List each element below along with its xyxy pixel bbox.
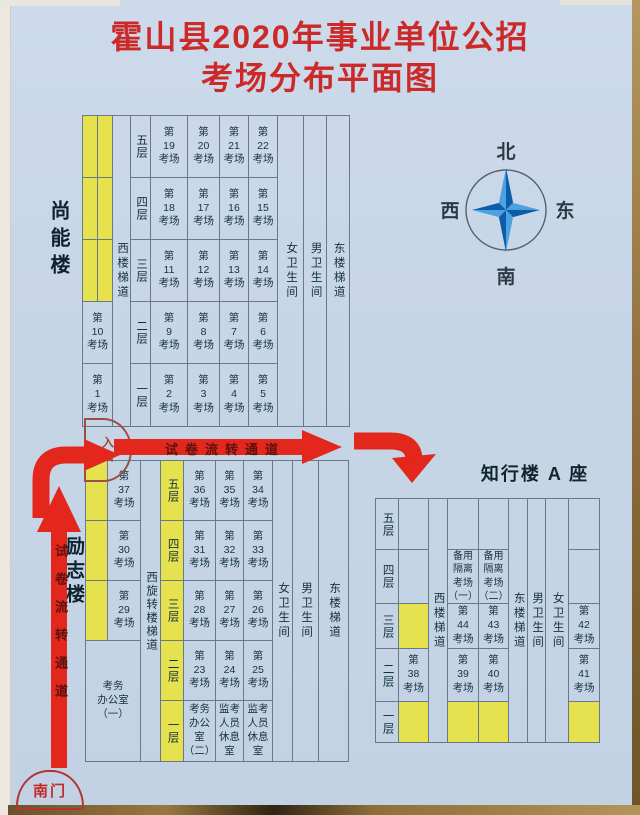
stairway-column-west: 西楼梯道 (113, 116, 131, 426)
empty-cell (569, 499, 599, 550)
room-cell: 第 30 考场 (108, 521, 141, 581)
room-cell: 第 39 考场 (448, 649, 479, 702)
highlighted-cell (83, 116, 98, 178)
floor-label: 一层 (376, 702, 399, 742)
restroom-column-female: 女卫生间 (273, 461, 293, 761)
room-cell: 第 21 考场 (220, 116, 249, 178)
floor-label: 一层 (161, 701, 184, 761)
room-cell: 第 28 考场 (184, 581, 216, 641)
compass-east-label: 东 (555, 199, 574, 222)
room-cell: 第 10 考场 (83, 302, 113, 364)
highlighted-cell (98, 240, 113, 302)
highlighted-cell (83, 178, 98, 240)
room-cell: 第 29 考场 (108, 581, 141, 641)
highlighted-cell (569, 702, 599, 742)
highlighted-cell (86, 521, 108, 581)
room-cell: 第 42 考场 (569, 604, 599, 649)
exam-map-board: 霍山县2020年事业单位公招 考场分布平面图 尚能楼 第 10 考场 第 1 考… (0, 0, 640, 815)
floor-label: 四层 (161, 521, 184, 581)
room-cell: 第 13 考场 (220, 240, 249, 302)
room-cell: 第 19 考场 (151, 116, 188, 178)
room-cell: 第 31 考场 (184, 521, 216, 581)
stairway-column-west: 西楼梯道 (429, 499, 448, 742)
floor-label: 三层 (161, 581, 184, 641)
frame-left (0, 0, 11, 815)
stairway-column-east: 东楼梯道 (327, 116, 349, 426)
room-cell: 第 14 考场 (249, 240, 278, 302)
room-cell: 第 5 考场 (249, 364, 278, 426)
right-curve-arrow-icon (352, 430, 447, 486)
frame-top-left (0, 0, 120, 6)
floor-label: 一层 (131, 364, 151, 426)
channel-label-vertical: 试卷流转通道 (51, 544, 70, 712)
room-cell: 第 4 考场 (220, 364, 249, 426)
room-cell: 第 36 考场 (184, 461, 216, 521)
room-cell: 第 41 考场 (569, 649, 599, 702)
restroom-column-female: 女卫生间 (278, 116, 304, 426)
room-cell: 第 18 考场 (151, 178, 188, 240)
zhixing-table: 五层 四层 三层 二层 一层 第 38 考场 西楼梯道 备用 隔离 考场 （一）… (375, 498, 600, 743)
room-cell: 第 23 考场 (184, 641, 216, 701)
room-cell: 第 38 考场 (399, 649, 429, 702)
restroom-column-female: 女卫生间 (546, 499, 569, 742)
room-cell: 第 22 考场 (249, 116, 278, 178)
south-gate: 南门 (16, 770, 84, 810)
floor-label: 五层 (161, 461, 184, 521)
compass-south-label: 南 (496, 266, 515, 288)
room-cell: 第 25 考场 (244, 641, 273, 701)
room-cell: 第 9 考场 (151, 302, 188, 364)
frame-bottom (8, 805, 640, 815)
shangneng-table: 第 10 考场 第 1 考场 西楼梯道 五层 四层 三层 二层 一层 第 19 … (82, 115, 350, 427)
empty-cell (569, 550, 599, 604)
room-cell: 第 32 考场 (216, 521, 244, 581)
room-cell: 第 27 考场 (216, 581, 244, 641)
room-cell: 第 3 考场 (188, 364, 220, 426)
frame-top-right (560, 0, 640, 5)
restroom-column-male: 男卫生间 (528, 499, 546, 742)
page-title-line1: 霍山县2020年事业单位公招 (0, 12, 640, 58)
empty-cell (399, 550, 429, 604)
page-title-line2: 考场分布平面图 (0, 53, 640, 99)
compass-star-icon (472, 168, 540, 252)
room-cell: 第 2 考场 (151, 364, 188, 426)
empty-cell (448, 499, 479, 550)
restroom-column-male: 男卫生间 (293, 461, 319, 761)
room-cell: 第 15 考场 (249, 178, 278, 240)
frame-right (632, 0, 640, 815)
highlighted-cell (479, 702, 509, 742)
room-cell: 第 16 考场 (220, 178, 249, 240)
south-gate-label: 南门 (33, 780, 67, 801)
highlighted-cell (83, 240, 98, 302)
rest-room-cell: 监考 人员 休息 室 (216, 701, 244, 761)
restroom-column-male: 男卫生间 (304, 116, 327, 426)
compass-rose: 北 南 西 东 (428, 128, 588, 288)
highlighted-cell (399, 604, 429, 649)
floor-label: 三层 (376, 604, 399, 649)
empty-cell (479, 499, 509, 550)
compass-north-label: 北 (496, 141, 515, 163)
building-label-zhixing: 知行楼 A 座 (455, 460, 615, 486)
room-cell: 第 7 考场 (220, 302, 249, 364)
stairway-column-east: 东楼梯道 (319, 461, 348, 761)
floor-label: 五层 (131, 116, 151, 178)
backup-room-cell: 备用 隔离 考场 （一） (448, 550, 479, 604)
office-cell: 考务 办公 室 （二） (184, 701, 216, 761)
room-cell: 第 43 考场 (479, 604, 509, 649)
room-cell: 第 40 考场 (479, 649, 509, 702)
highlighted-cell (86, 581, 108, 641)
highlighted-cell (399, 702, 429, 742)
room-cell: 第 6 考场 (249, 302, 278, 364)
room-cell: 第 26 考场 (244, 581, 273, 641)
highlighted-cell (98, 178, 113, 240)
floor-label: 三层 (131, 240, 151, 302)
office-cell: 考务 办公室 （一） (86, 641, 141, 761)
rest-room-cell: 监考 人员 休息 室 (244, 701, 273, 761)
room-cell: 第 1 考场 (83, 364, 113, 426)
room-cell: 第 11 考场 (151, 240, 188, 302)
empty-cell (399, 499, 429, 550)
building-label-shangneng: 尚能楼 (44, 200, 73, 281)
floor-label: 四层 (376, 550, 399, 604)
backup-room-cell: 备用 隔离 考场 （二） (479, 550, 509, 604)
room-cell: 第 8 考场 (188, 302, 220, 364)
room-cell: 第 35 考场 (216, 461, 244, 521)
floor-label: 二层 (131, 302, 151, 364)
room-cell: 第 33 考场 (244, 521, 273, 581)
floor-label: 四层 (131, 178, 151, 240)
floor-label: 二层 (376, 649, 399, 702)
room-cell: 第 34 考场 (244, 461, 273, 521)
floor-label: 二层 (161, 641, 184, 701)
highlighted-cell (98, 116, 113, 178)
channel-label-horizontal: 试卷流转通道 (124, 439, 326, 458)
highlighted-cell (448, 702, 479, 742)
room-cell: 第 17 考场 (188, 178, 220, 240)
compass-west-label: 西 (440, 201, 459, 222)
stairway-column-west-spiral: 西旋转楼梯道 (141, 461, 161, 761)
room-cell: 第 24 考场 (216, 641, 244, 701)
room-cell: 第 20 考场 (188, 116, 220, 178)
room-cell: 第 12 考场 (188, 240, 220, 302)
stairway-column-east: 东楼梯道 (509, 499, 528, 742)
room-cell: 第 44 考场 (448, 604, 479, 649)
floor-label: 五层 (376, 499, 399, 550)
